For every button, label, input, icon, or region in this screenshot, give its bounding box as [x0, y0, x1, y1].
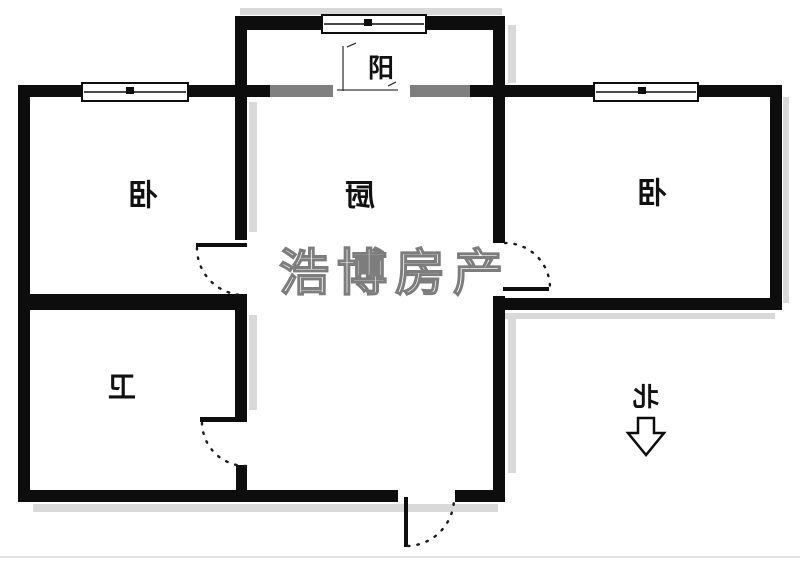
shadow-bath-wall	[249, 315, 257, 410]
balcony-opening-bars	[270, 85, 470, 97]
wall-bathroom-door-stub	[236, 465, 247, 490]
shadow-inner-wall-upper	[249, 102, 257, 232]
shadow-bottom-wall	[33, 504, 498, 512]
wall-center-lower	[493, 296, 505, 502]
wall-balcony-left	[235, 16, 247, 85]
balcony-bar-right	[410, 85, 470, 97]
label-balcony: 阳	[368, 53, 394, 83]
watermark-text: 浩博房产	[279, 245, 511, 301]
wall-bottom-left-of-door	[18, 490, 398, 502]
wall-balcony-right	[493, 16, 505, 85]
door-bathroom	[200, 417, 247, 466]
label-bedroom-left: 卧	[128, 180, 158, 213]
balcony-bar-left	[270, 85, 333, 97]
wall-left	[18, 85, 30, 502]
door-arc-bedroom-right	[505, 243, 550, 288]
north-arrow-icon	[628, 418, 664, 455]
wall-center-upper	[493, 85, 505, 243]
wall-inner-left-upper	[235, 97, 247, 240]
wall-bathroom-top	[18, 294, 247, 310]
label-bathroom: 卫	[108, 372, 136, 403]
window-balcony	[322, 15, 426, 33]
window-bedroom-right	[594, 83, 698, 101]
wall-right	[770, 85, 782, 310]
door-arc-bedroom-left	[197, 248, 244, 295]
floor-plan-canvas: 阳 卧 厨 卧 卫 北 浩博房产	[0, 0, 800, 563]
label-kitchen: 厨	[345, 180, 375, 213]
door-arc-bathroom	[202, 423, 246, 466]
shadow-center-wall	[508, 315, 516, 473]
shadow-bedroom-right-bottom	[505, 313, 775, 319]
label-bedroom-right: 卧	[637, 178, 667, 211]
dim-tick-top	[347, 43, 356, 47]
door-bedroom-left	[196, 243, 247, 295]
shadow-balcony-top	[240, 8, 502, 15]
shadow-balcony-right	[508, 25, 516, 83]
shadow-right-wall	[783, 97, 789, 303]
wall-bedroom-right-bottom	[493, 298, 782, 310]
floor-plan-image: 阳 卧 厨 卧 卫 北 浩博房产	[0, 0, 800, 563]
wall-bathroom-right	[235, 310, 247, 417]
room-labels: 阳 卧 厨 卧 卫	[108, 53, 667, 403]
window-bedroom-left	[82, 83, 188, 101]
image-bottom-line	[0, 556, 800, 558]
north-indicator: 北	[628, 382, 664, 455]
north-label: 北	[633, 382, 659, 412]
